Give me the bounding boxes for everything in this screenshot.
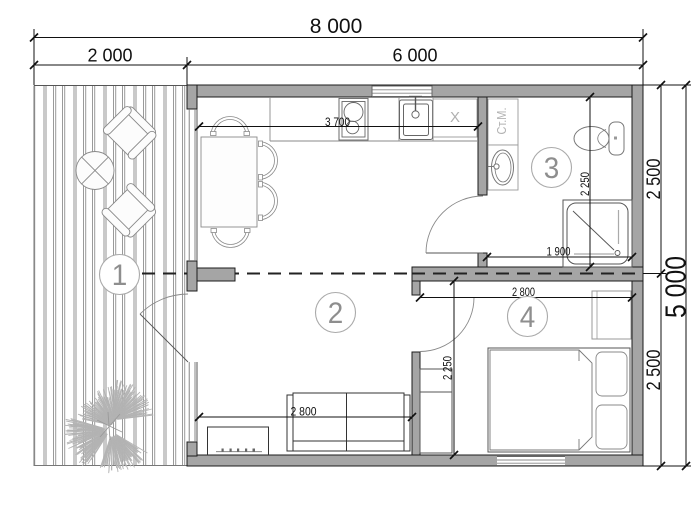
svg-text:3 700: 3 700 [325, 115, 350, 129]
svg-text:X: X [450, 109, 460, 126]
svg-text:8 000: 8 000 [310, 15, 363, 38]
svg-text:3: 3 [544, 152, 560, 185]
svg-text:Ст.М.: Ст.М. [495, 108, 509, 135]
svg-text:2 500: 2 500 [644, 159, 665, 200]
svg-text:2 250: 2 250 [441, 356, 455, 380]
svg-text:6 000: 6 000 [392, 46, 437, 66]
svg-text:2 500: 2 500 [644, 350, 665, 391]
svg-text:2 000: 2 000 [87, 46, 132, 66]
svg-text:5 000: 5 000 [661, 256, 693, 318]
svg-text:2 800: 2 800 [291, 405, 317, 419]
svg-text:4: 4 [520, 301, 536, 334]
svg-text:1 900: 1 900 [547, 245, 571, 259]
svg-text:1: 1 [112, 259, 128, 292]
svg-text:2 250: 2 250 [578, 172, 592, 196]
svg-text:2: 2 [328, 297, 344, 330]
